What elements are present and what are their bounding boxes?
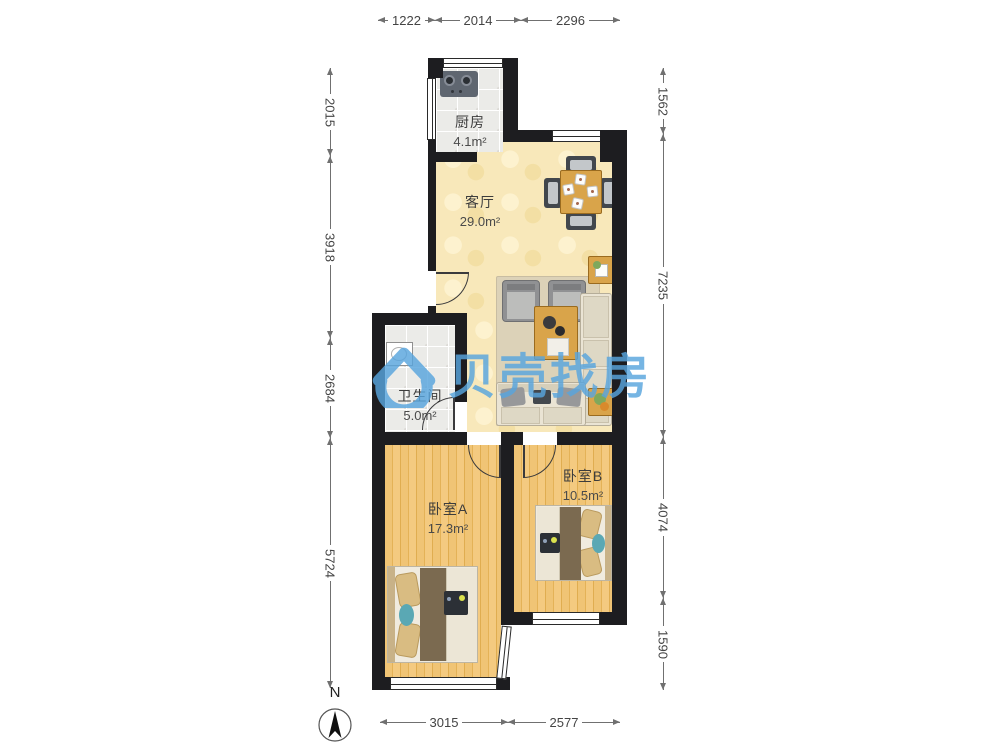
wall <box>428 58 443 78</box>
wall <box>372 432 467 445</box>
dim-line <box>435 20 460 21</box>
dining-table <box>560 170 602 214</box>
dimension-right-4: 1590 <box>655 598 671 690</box>
dining-chair <box>566 212 596 230</box>
wall <box>600 612 627 625</box>
wall <box>428 152 477 162</box>
stove-knob <box>459 90 462 93</box>
dim-line <box>663 68 664 83</box>
burner-icon <box>461 75 472 86</box>
bed-a <box>387 566 478 663</box>
watermark: 贝壳找房 <box>366 336 652 408</box>
room-area: 4.1m² <box>436 134 504 149</box>
window <box>427 78 436 140</box>
dim-line <box>380 722 426 723</box>
room-name: 客厅 <box>440 192 520 212</box>
dimension-top-2: 2014 <box>435 12 521 28</box>
dim-value: 3918 <box>323 229 338 266</box>
wall <box>372 677 390 690</box>
dim-line <box>521 20 552 21</box>
dim-value: 1562 <box>656 83 671 120</box>
dim-line <box>378 20 388 21</box>
wall <box>503 58 518 142</box>
dim-line <box>462 722 508 723</box>
headboard <box>388 567 395 662</box>
floorplan-canvas: 厨房 4.1m² 客厅 29.0m² 卫生间 5.0m² 卧室A 17.3m² … <box>0 0 1000 750</box>
dim-line <box>425 20 435 21</box>
room-label-bedroom-a: 卧室A 17.3m² <box>408 499 488 536</box>
window <box>443 58 503 68</box>
bed-accessory <box>444 591 468 615</box>
dim-line <box>663 437 664 499</box>
dim-line <box>663 134 664 267</box>
dimension-bottom-2: 2577 <box>508 714 620 730</box>
bed-b <box>535 505 612 581</box>
window <box>390 677 497 690</box>
room-label-kitchen: 厨房 4.1m² <box>436 112 504 149</box>
dimension-right-1: 1562 <box>655 68 671 134</box>
dim-line <box>330 156 331 229</box>
beike-logo-icon <box>366 336 442 408</box>
dim-line <box>663 598 664 626</box>
armchair-cushion <box>507 292 535 319</box>
dim-value: 5724 <box>323 545 338 582</box>
headboard <box>605 506 611 580</box>
sofa-cushion <box>583 296 609 338</box>
dimension-right-2: 7235 <box>655 134 671 437</box>
compass: N <box>315 684 355 750</box>
dimension-left-3: 2684 <box>322 338 338 438</box>
dimension-left-1: 2015 <box>322 68 338 156</box>
room-area: 29.0m² <box>440 214 520 229</box>
side-table <box>588 256 614 284</box>
dim-line <box>663 536 664 598</box>
dimension-left-2: 3918 <box>322 156 338 338</box>
dimension-top-1: 1222 <box>378 12 435 28</box>
round-pillow <box>399 604 414 626</box>
dim-line <box>663 662 664 690</box>
burner-icon <box>444 75 455 86</box>
wall <box>501 432 523 445</box>
plant-leaf <box>593 261 601 269</box>
dim-line <box>582 722 620 723</box>
dim-line <box>496 20 521 21</box>
wall <box>501 445 514 625</box>
stove-knob <box>451 90 454 93</box>
place-setting <box>571 197 584 210</box>
compass-north-label: N <box>315 684 355 701</box>
dim-line <box>330 438 331 545</box>
dim-line <box>663 304 664 437</box>
room-name: 卧室A <box>408 499 488 519</box>
room-area: 17.3m² <box>408 521 488 536</box>
stove <box>440 71 478 97</box>
blanket <box>420 568 446 661</box>
bed-pillow <box>394 621 422 658</box>
dim-value: 7235 <box>656 267 671 304</box>
window <box>532 612 600 625</box>
dim-line <box>330 581 331 688</box>
wall <box>514 612 532 625</box>
dim-line <box>330 130 331 156</box>
dim-value: 2015 <box>323 94 338 131</box>
dim-value: 2577 <box>546 715 583 730</box>
armchair-cushion <box>553 284 581 290</box>
wall <box>518 130 554 142</box>
place-setting <box>574 173 586 185</box>
dim-value: 4074 <box>656 499 671 536</box>
dim-line <box>330 265 331 338</box>
bed-accessory <box>540 533 560 553</box>
dim-line <box>330 406 331 438</box>
room-area: 10.5m² <box>543 488 623 503</box>
sofa-cushion <box>501 407 540 424</box>
dim-value: 1590 <box>656 626 671 663</box>
room-area: 5.0m² <box>385 408 455 423</box>
dim-value: 3015 <box>426 715 463 730</box>
armchair-cushion <box>507 284 535 290</box>
dim-line <box>508 722 546 723</box>
decor-bowl <box>555 326 565 336</box>
bed-pillow <box>394 571 422 608</box>
dim-value: 1222 <box>388 13 425 28</box>
dim-line <box>589 20 620 21</box>
dim-line <box>330 338 331 370</box>
wall <box>557 432 627 445</box>
dimension-right-3: 4074 <box>655 437 671 598</box>
dimension-top-3: 2296 <box>521 12 620 28</box>
window <box>552 130 602 142</box>
dim-line <box>330 68 331 94</box>
place-setting <box>562 183 575 196</box>
room-label-bedroom-b: 卧室B 10.5m² <box>543 466 623 503</box>
round-pillow <box>592 534 605 553</box>
dim-value: 2014 <box>460 13 497 28</box>
dim-line <box>663 119 664 134</box>
north-arrow-icon <box>315 701 355 745</box>
dim-value: 2684 <box>323 370 338 407</box>
blanket <box>560 507 581 580</box>
sofa-cushion <box>543 407 582 424</box>
watermark-text: 贝壳找房 <box>448 337 652 407</box>
decor-bowl <box>543 316 556 329</box>
dimension-left-4: 5724 <box>322 438 338 688</box>
room-name: 卧室B <box>543 466 623 486</box>
room-label-living: 客厅 29.0m² <box>440 192 520 229</box>
place-setting <box>586 185 598 197</box>
dimension-bottom-1: 3015 <box>380 714 508 730</box>
dim-value: 2296 <box>552 13 589 28</box>
room-name: 厨房 <box>436 112 504 132</box>
wall <box>372 313 467 325</box>
